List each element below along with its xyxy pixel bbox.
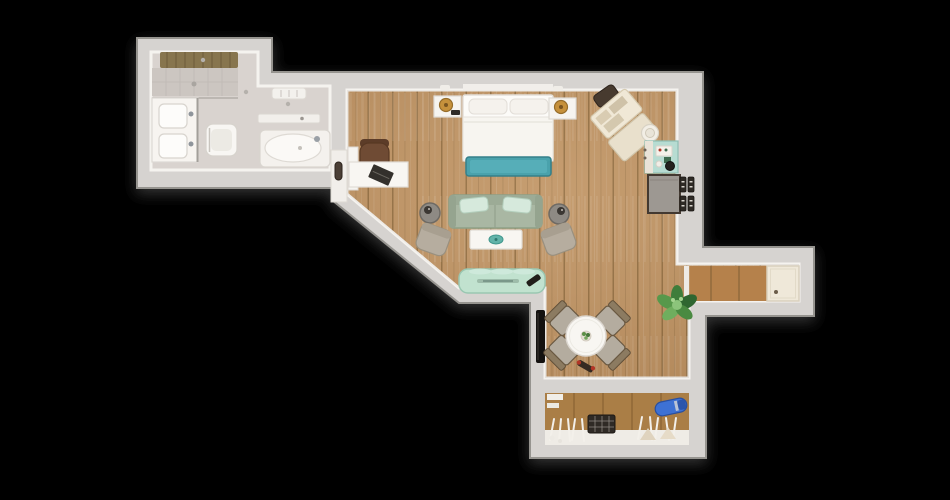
ceiling-light xyxy=(201,58,205,62)
closet-shelf xyxy=(547,394,563,400)
entry-hallway xyxy=(684,266,799,301)
shower-mat xyxy=(160,52,238,68)
door-handle xyxy=(774,290,778,294)
mint-cushion xyxy=(459,197,488,214)
storage-basket xyxy=(588,415,615,433)
wall-sconce xyxy=(440,85,450,90)
wall-sconce xyxy=(553,86,563,91)
walk-in-closet xyxy=(545,393,689,445)
shower-drain xyxy=(192,82,197,87)
wall-niche xyxy=(536,310,545,363)
wall-shelf xyxy=(258,114,320,123)
sliding-door xyxy=(331,150,347,202)
hallway-tiles xyxy=(690,266,767,301)
remote xyxy=(451,110,460,115)
kettle xyxy=(666,162,675,171)
sink-top xyxy=(159,104,187,128)
headboard xyxy=(463,84,553,90)
coffee-tray xyxy=(656,146,672,156)
gray-cabinet xyxy=(648,175,680,213)
door-handle xyxy=(335,162,342,180)
entry-door xyxy=(767,266,799,301)
ceiling-light xyxy=(244,90,248,94)
pillow xyxy=(510,99,548,114)
mint-cushion xyxy=(502,197,531,214)
faucet-icon xyxy=(189,142,194,147)
sink-bottom xyxy=(159,134,187,158)
floor-plan xyxy=(0,0,950,500)
cup xyxy=(656,161,662,167)
duvet xyxy=(463,117,553,161)
floor-plan-canvas xyxy=(0,0,950,500)
ceiling-light xyxy=(286,102,290,106)
pillow xyxy=(469,99,507,114)
faucet-icon xyxy=(189,112,194,117)
tub-faucet-icon xyxy=(314,136,320,142)
closet-shelf xyxy=(547,403,559,408)
